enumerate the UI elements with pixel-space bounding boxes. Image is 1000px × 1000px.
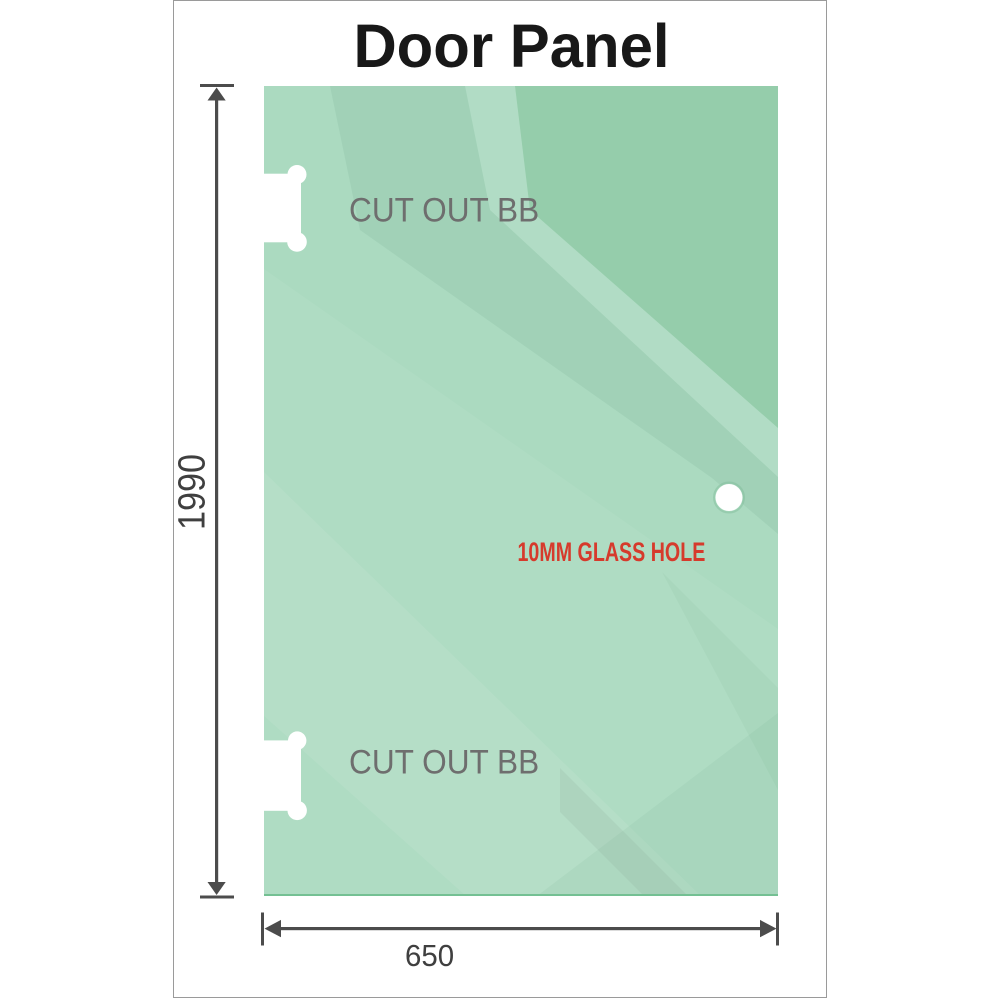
svg-text:1990: 1990 (170, 454, 213, 530)
svg-text:650: 650 (405, 939, 454, 973)
svg-text:Door Panel: Door Panel (353, 12, 669, 81)
svg-text:10MM GLASS HOLE: 10MM GLASS HOLE (518, 538, 706, 568)
svg-text:CUT OUT BB: CUT OUT BB (349, 743, 539, 782)
svg-text:CUT OUT BB: CUT OUT BB (349, 191, 539, 230)
